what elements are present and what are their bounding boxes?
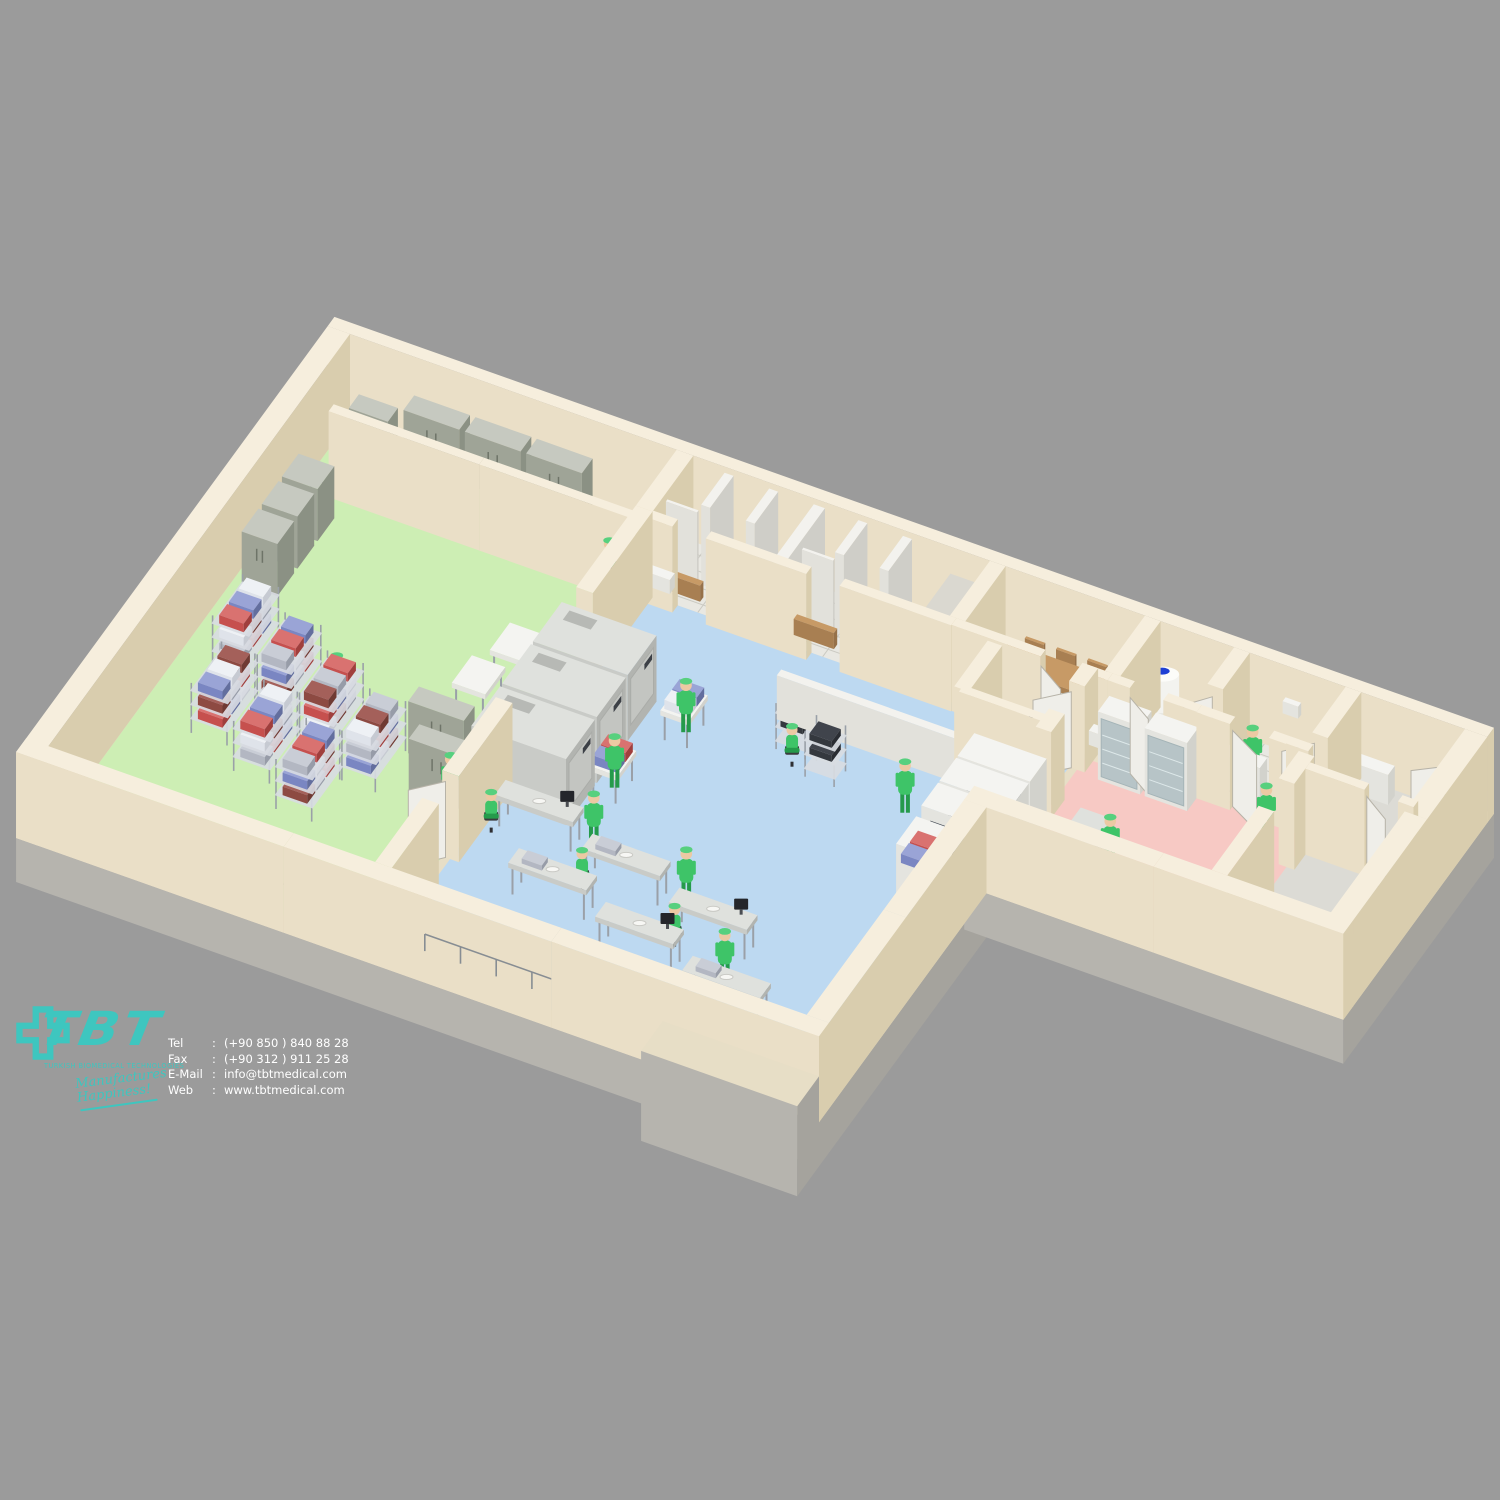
contact-row-web: Web:www.tbtmedical.com — [168, 1083, 349, 1099]
wall — [1196, 705, 1235, 810]
glass-cabinet — [1145, 713, 1199, 812]
logo-tagline: Manufactures Happiness! — [75, 1066, 174, 1105]
floorplan-3d-render — [0, 0, 1500, 1500]
wall — [1069, 663, 1098, 773]
render-canvas: TBT TURKISH BIOMEDICAL TECHNOLOGIES Manu… — [0, 0, 1500, 1500]
contact-row-fax: Fax:(+90 312 ) 911 25 28 — [168, 1052, 349, 1068]
brand-block: TBT TURKISH BIOMEDICAL TECHNOLOGIES Manu… — [14, 1002, 174, 1112]
contact-row-email: E-Mail:info@tbtmedical.com — [168, 1067, 349, 1083]
contact-row-tel: Tel:(+90 850 ) 840 88 28 — [168, 1036, 349, 1052]
logo-text: TBT — [36, 1006, 166, 1053]
contact-block: Tel:(+90 850 ) 840 88 28 Fax:(+90 312 ) … — [168, 1036, 349, 1098]
